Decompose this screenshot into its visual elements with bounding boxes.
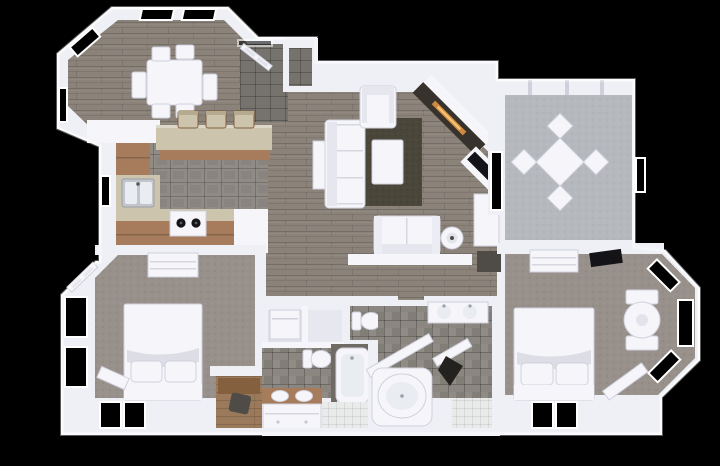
- dining-chair: [176, 45, 194, 59]
- coat-closet: [283, 38, 318, 92]
- mullion: [528, 80, 532, 95]
- living-sunroom-wall: [488, 92, 505, 215]
- armchair: [360, 86, 396, 128]
- bar-stools: [178, 111, 254, 128]
- headboard: [124, 384, 202, 400]
- bathroom-left: [262, 342, 370, 431]
- bath-east-wall: [492, 296, 505, 434]
- window: [678, 300, 693, 346]
- bar-half-wall: [87, 120, 160, 143]
- window: [65, 347, 87, 387]
- dining-chair: [152, 104, 170, 118]
- dining-chair: [203, 74, 217, 100]
- desk-nook: [210, 366, 266, 428]
- white-tile-floor: [452, 398, 494, 430]
- laundry-closet: [262, 306, 348, 346]
- door-mat: [477, 251, 501, 272]
- closet-floor: [289, 48, 312, 86]
- half-wall: [348, 254, 472, 265]
- refrigerator-cabinet: [116, 143, 150, 175]
- dresser: [148, 253, 198, 277]
- toilet: [352, 312, 381, 330]
- kitchen-sink: [122, 179, 154, 207]
- window: [101, 176, 110, 206]
- loveseat: [374, 216, 440, 254]
- dining-chair: [132, 72, 146, 98]
- double-vanity-white: [428, 302, 488, 323]
- mullion: [600, 80, 604, 95]
- pillow: [521, 363, 553, 385]
- pillow: [131, 361, 162, 382]
- center-bath-block: [262, 296, 505, 436]
- empty-closet: [308, 310, 342, 342]
- window: [636, 158, 645, 192]
- garden-tub: [372, 368, 432, 426]
- sink: [272, 391, 289, 402]
- vanity-cabinet: [263, 404, 321, 431]
- entry-tile-floor: [240, 44, 288, 122]
- range-cooktop: [170, 211, 206, 236]
- bed: [124, 304, 202, 400]
- mullion: [565, 80, 569, 95]
- bed: [514, 308, 594, 400]
- toilet: [303, 350, 331, 368]
- pillow: [556, 363, 588, 385]
- breakfast-bar-counter: [156, 125, 272, 150]
- round-side-table: [441, 227, 463, 249]
- dining-table: [147, 60, 202, 105]
- window: [65, 297, 87, 337]
- white-tile-floor: [322, 402, 370, 430]
- bathtub: [331, 344, 370, 403]
- sofa-console-table: [313, 141, 325, 189]
- double-vanity: [262, 388, 322, 431]
- washer: [270, 310, 300, 339]
- sink: [296, 391, 313, 402]
- dining-chair: [152, 47, 170, 61]
- dresser: [530, 250, 578, 272]
- pillow: [165, 361, 196, 382]
- window: [491, 152, 502, 210]
- desk-top: [218, 378, 260, 394]
- bathroom-right: [366, 302, 494, 430]
- desk-chair: [228, 392, 252, 415]
- coffee-table: [372, 140, 403, 184]
- window: [59, 88, 67, 122]
- floorplan-render: 3D top-down render of a two-bedroom apar…: [0, 0, 720, 466]
- headboard: [514, 385, 594, 400]
